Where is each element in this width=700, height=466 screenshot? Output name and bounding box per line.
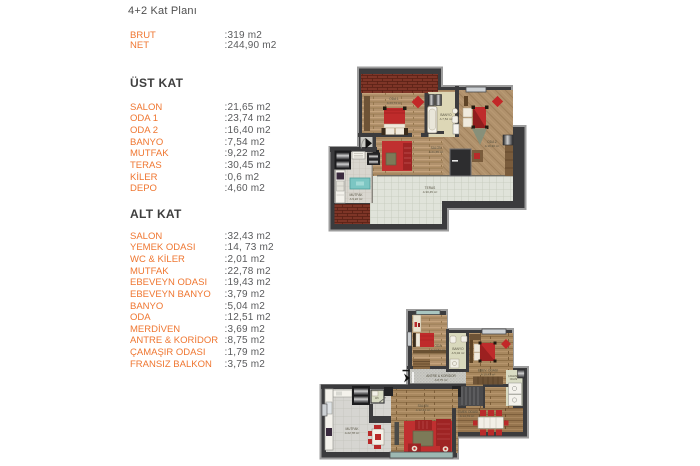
svg-text:A 9,22 m²: A 9,22 m² [350, 197, 363, 201]
svg-text:A 32,43 m²: A 32,43 m² [416, 408, 431, 412]
svg-text:A 14,73 m²: A 14,73 m² [460, 414, 475, 418]
svg-text:A 5,04 m²: A 5,04 m² [452, 351, 465, 355]
svg-text:WC: WC [375, 397, 379, 400]
svg-text:A 12,51 m²: A 12,51 m² [431, 348, 446, 352]
svg-text:A 23,74 m²: A 23,74 m² [387, 101, 402, 105]
svg-text:A 19,43 m²: A 19,43 m² [481, 373, 496, 377]
svg-text:ODASI: ODASI [510, 378, 518, 381]
svg-text:A 8,75 m²: A 8,75 m² [435, 378, 448, 382]
svg-text:A 21,65 m²: A 21,65 m² [429, 150, 444, 154]
svg-text:A 7,54 m²: A 7,54 m² [440, 117, 453, 121]
svg-text:A 30,45 m²: A 30,45 m² [423, 190, 438, 194]
svg-text:A 16,40 m²: A 16,40 m² [485, 144, 500, 148]
svg-text:A 22,78 m²: A 22,78 m² [345, 431, 360, 435]
